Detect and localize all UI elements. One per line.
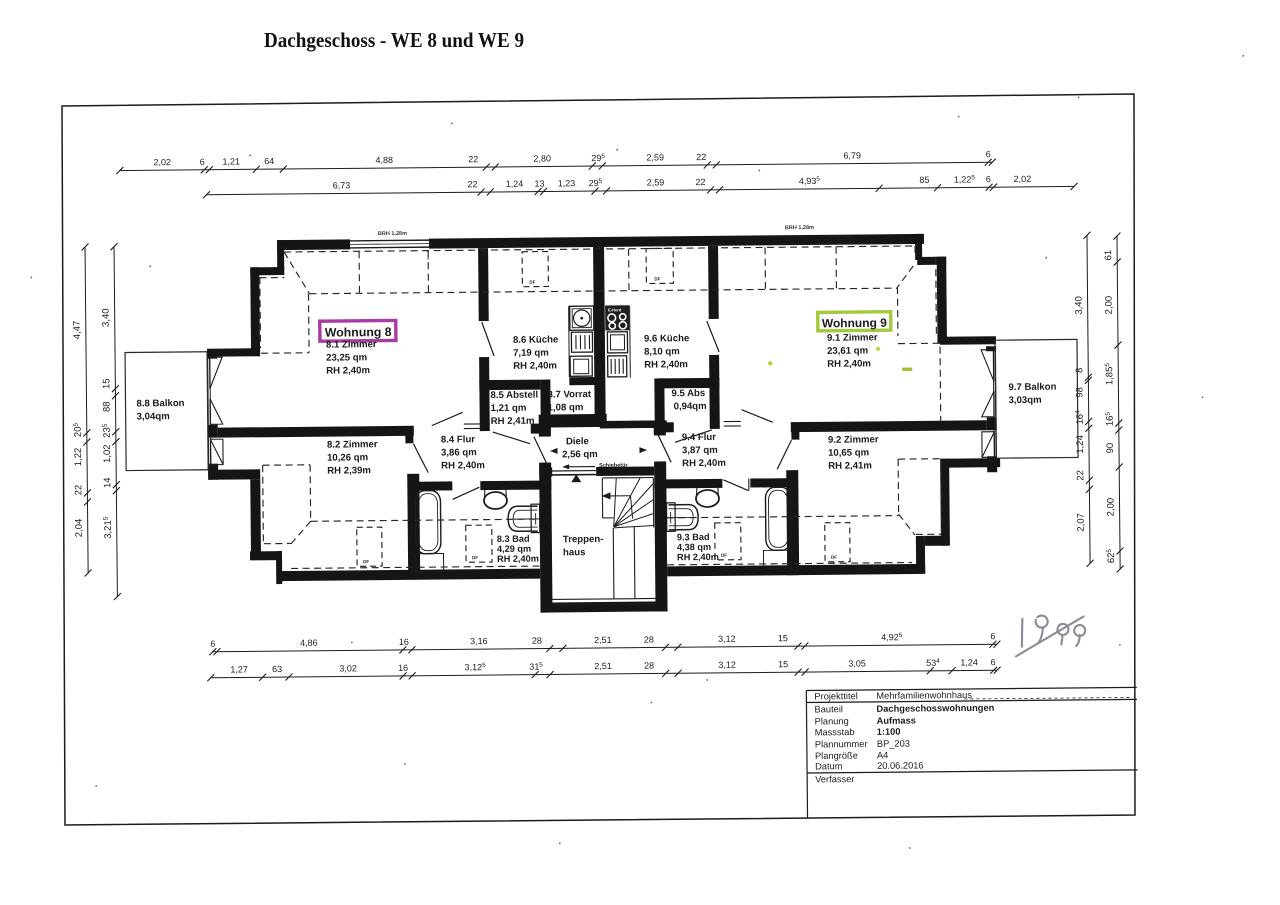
svg-text:Schiebetür: Schiebetür — [599, 463, 628, 469]
svg-text:22: 22 — [1075, 470, 1086, 481]
svg-text:3,40: 3,40 — [1074, 296, 1085, 315]
svg-text:2,04: 2,04 — [74, 519, 85, 538]
svg-text:RH 2,40m: RH 2,40m — [441, 460, 485, 471]
svg-text:9.5 Abs: 9.5 Abs — [671, 388, 705, 399]
svg-text:2,51: 2,51 — [594, 661, 612, 671]
svg-text:BP_203: BP_203 — [877, 739, 910, 749]
svg-text:7,19 qm: 7,19 qm — [513, 347, 549, 358]
svg-text:8.2 Zimmer: 8.2 Zimmer — [327, 439, 378, 450]
svg-text:9.1 Zimmer: 9.1 Zimmer — [827, 332, 878, 343]
svg-text:16: 16 — [398, 663, 408, 673]
svg-text:16: 16 — [399, 637, 409, 647]
svg-text:Massstab: Massstab — [815, 727, 855, 737]
svg-text:8,10 qm: 8,10 qm — [644, 346, 680, 357]
svg-text:1,21: 1,21 — [222, 156, 240, 166]
svg-text:2,07: 2,07 — [1076, 513, 1087, 532]
svg-text:DF: DF — [654, 276, 660, 281]
svg-text:9.2 Zimmer: 9.2 Zimmer — [828, 434, 879, 445]
svg-text:10,26 qm: 10,26 qm — [327, 452, 368, 463]
svg-text:3,12: 3,12 — [718, 660, 736, 670]
svg-text:8.4 Flur: 8.4 Flur — [441, 434, 475, 445]
svg-text:22: 22 — [468, 154, 478, 164]
svg-text:2,02: 2,02 — [1014, 174, 1032, 184]
svg-text:1,24: 1,24 — [506, 179, 524, 189]
svg-text:3,02: 3,02 — [339, 663, 357, 673]
svg-text:8.7 Vorrat: 8.7 Vorrat — [547, 389, 591, 400]
svg-text:4,88: 4,88 — [375, 155, 393, 165]
svg-text:13: 13 — [534, 179, 544, 189]
svg-text:3,05: 3,05 — [848, 658, 866, 668]
svg-text:Planung: Planung — [815, 716, 849, 726]
svg-text:1:100: 1:100 — [877, 727, 901, 737]
svg-text:28: 28 — [644, 660, 654, 670]
svg-text:2,56 qm: 2,56 qm — [562, 449, 598, 460]
svg-text:14: 14 — [102, 477, 113, 488]
svg-text:4,38 qm: 4,38 qm — [677, 542, 711, 552]
svg-text:DF: DF — [363, 559, 369, 564]
svg-text:RH 2,40m: RH 2,40m — [513, 360, 557, 371]
svg-text:DF: DF — [721, 553, 727, 558]
svg-text:Dachgeschoss - WE 8 und WE 9: Dachgeschoss - WE 8 und WE 9 — [264, 28, 524, 52]
svg-text:22: 22 — [467, 179, 477, 189]
svg-text:2,02: 2,02 — [153, 157, 171, 167]
svg-text:6: 6 — [986, 174, 991, 184]
svg-text:15: 15 — [778, 659, 788, 669]
svg-text:4,29 qm: 4,29 qm — [497, 544, 531, 554]
svg-text:3,16: 3,16 — [470, 636, 488, 646]
svg-text:A4: A4 — [877, 750, 888, 760]
svg-text:6: 6 — [200, 157, 205, 167]
svg-text:DF: DF — [472, 555, 478, 560]
svg-text:Plannummer: Plannummer — [815, 739, 868, 750]
svg-text:1,22: 1,22 — [73, 448, 84, 467]
svg-text:88: 88 — [102, 401, 113, 412]
svg-text:Wohnung 8: Wohnung 8 — [325, 325, 392, 340]
svg-text:8.6 Küche: 8.6 Küche — [513, 334, 558, 345]
svg-text:2,80: 2,80 — [533, 153, 551, 163]
svg-text:RH 2,40m: RH 2,40m — [827, 358, 871, 369]
svg-text:63: 63 — [272, 664, 282, 674]
svg-text:3,86 qm: 3,86 qm — [441, 447, 477, 458]
svg-text:Plangröße: Plangröße — [815, 751, 858, 761]
svg-text:10,65 qm: 10,65 qm — [828, 447, 869, 458]
svg-text:61: 61 — [1103, 250, 1114, 261]
svg-text:DF: DF — [831, 555, 837, 560]
svg-text:28: 28 — [532, 636, 542, 646]
svg-text:4,47: 4,47 — [72, 321, 83, 340]
svg-text:1,27: 1,27 — [230, 664, 248, 674]
svg-text:2,51: 2,51 — [594, 635, 612, 645]
svg-text:8.1 Zimmer: 8.1 Zimmer — [326, 339, 377, 350]
svg-text:3,12: 3,12 — [718, 634, 736, 644]
svg-text:1,23: 1,23 — [558, 178, 576, 188]
svg-text:Aufmass: Aufmass — [877, 715, 916, 725]
svg-text:Dachgeschosswohnungen: Dachgeschosswohnungen — [876, 703, 994, 714]
svg-text:22: 22 — [696, 152, 706, 162]
svg-text:9.6 Küche: 9.6 Küche — [644, 333, 689, 344]
svg-text:Bauteil: Bauteil — [814, 704, 843, 714]
svg-text:23,25 qm: 23,25 qm — [326, 352, 367, 363]
svg-text:BRH 1,28m: BRH 1,28m — [785, 225, 814, 231]
svg-text:8: 8 — [1074, 368, 1085, 373]
svg-text:23,61 qm: 23,61 qm — [827, 345, 868, 356]
svg-text:haus: haus — [563, 547, 586, 558]
svg-text:Treppen-: Treppen- — [563, 534, 604, 545]
svg-text:RH 2,40m: RH 2,40m — [682, 458, 726, 469]
svg-text:90: 90 — [1105, 443, 1116, 454]
svg-text:9.3 Bad: 9.3 Bad — [677, 532, 710, 542]
svg-text:RH 2,40m: RH 2,40m — [326, 365, 370, 376]
svg-text:1,24: 1,24 — [1075, 435, 1086, 454]
svg-text:8.3 Bad: 8.3 Bad — [497, 534, 530, 544]
svg-text:2,59: 2,59 — [647, 177, 665, 187]
svg-text:1,02: 1,02 — [102, 444, 113, 463]
svg-text:9.4 Flur: 9.4 Flur — [682, 432, 716, 443]
svg-text:6: 6 — [986, 149, 991, 159]
svg-text:20.06.2016: 20.06.2016 — [877, 760, 924, 770]
svg-text:15: 15 — [101, 378, 112, 389]
svg-text:15: 15 — [778, 633, 788, 643]
svg-text:RH 2,39m: RH 2,39m — [327, 465, 371, 476]
svg-text:4,86: 4,86 — [300, 638, 318, 648]
svg-text:RH 2,40m: RH 2,40m — [644, 359, 688, 370]
svg-text:6,79: 6,79 — [843, 150, 861, 160]
svg-text:6: 6 — [990, 631, 995, 641]
svg-text:6: 6 — [990, 657, 995, 667]
svg-text:6: 6 — [210, 639, 215, 649]
svg-text:2,59: 2,59 — [646, 152, 664, 162]
svg-text:98: 98 — [1074, 387, 1085, 398]
svg-text:8.5 Abstell: 8.5 Abstell — [490, 390, 538, 401]
svg-text:64: 64 — [264, 156, 274, 166]
svg-text:BRH 1,28m: BRH 1,28m — [378, 231, 407, 237]
svg-text:1,08 qm: 1,08 qm — [548, 402, 584, 413]
svg-text:RH 2,40m: RH 2,40m — [497, 554, 539, 564]
svg-text:RH 2,41m: RH 2,41m — [828, 460, 872, 471]
svg-text:22: 22 — [695, 177, 705, 187]
svg-text:Verfasser: Verfasser — [815, 774, 854, 784]
svg-text:3,03qm: 3,03qm — [1008, 395, 1041, 406]
svg-text:1,21 qm: 1,21 qm — [491, 403, 527, 414]
svg-text:Projekttitel: Projekttitel — [814, 691, 858, 701]
svg-text:Wohnung 9: Wohnung 9 — [822, 316, 888, 331]
svg-text:2,00: 2,00 — [1104, 296, 1115, 315]
svg-text:9.7 Balkon: 9.7 Balkon — [1008, 382, 1056, 393]
svg-text:2,00: 2,00 — [1105, 498, 1116, 517]
svg-text:3,04qm: 3,04qm — [137, 411, 170, 422]
svg-text:22: 22 — [73, 485, 84, 496]
svg-text:RH 2,41m: RH 2,41m — [491, 416, 535, 427]
svg-text:8.8 Balkon: 8.8 Balkon — [136, 398, 184, 409]
svg-text:DF: DF — [529, 280, 535, 285]
svg-text:6,73: 6,73 — [333, 180, 351, 190]
svg-text:85: 85 — [919, 175, 929, 185]
svg-text:Datum: Datum — [815, 761, 843, 771]
svg-text:1,24: 1,24 — [960, 657, 978, 667]
svg-text:3,87 qm: 3,87 qm — [682, 445, 718, 456]
svg-text:Mehrfamilienwohnhaus: Mehrfamilienwohnhaus — [876, 690, 972, 701]
svg-text:28: 28 — [644, 634, 654, 644]
svg-text:3,40: 3,40 — [101, 308, 112, 327]
svg-text:0,94qm: 0,94qm — [674, 401, 707, 412]
svg-text:Diele: Diele — [566, 436, 589, 447]
svg-text:E-Herd: E-Herd — [608, 307, 622, 312]
svg-text:RH 2,40m: RH 2,40m — [677, 552, 719, 562]
